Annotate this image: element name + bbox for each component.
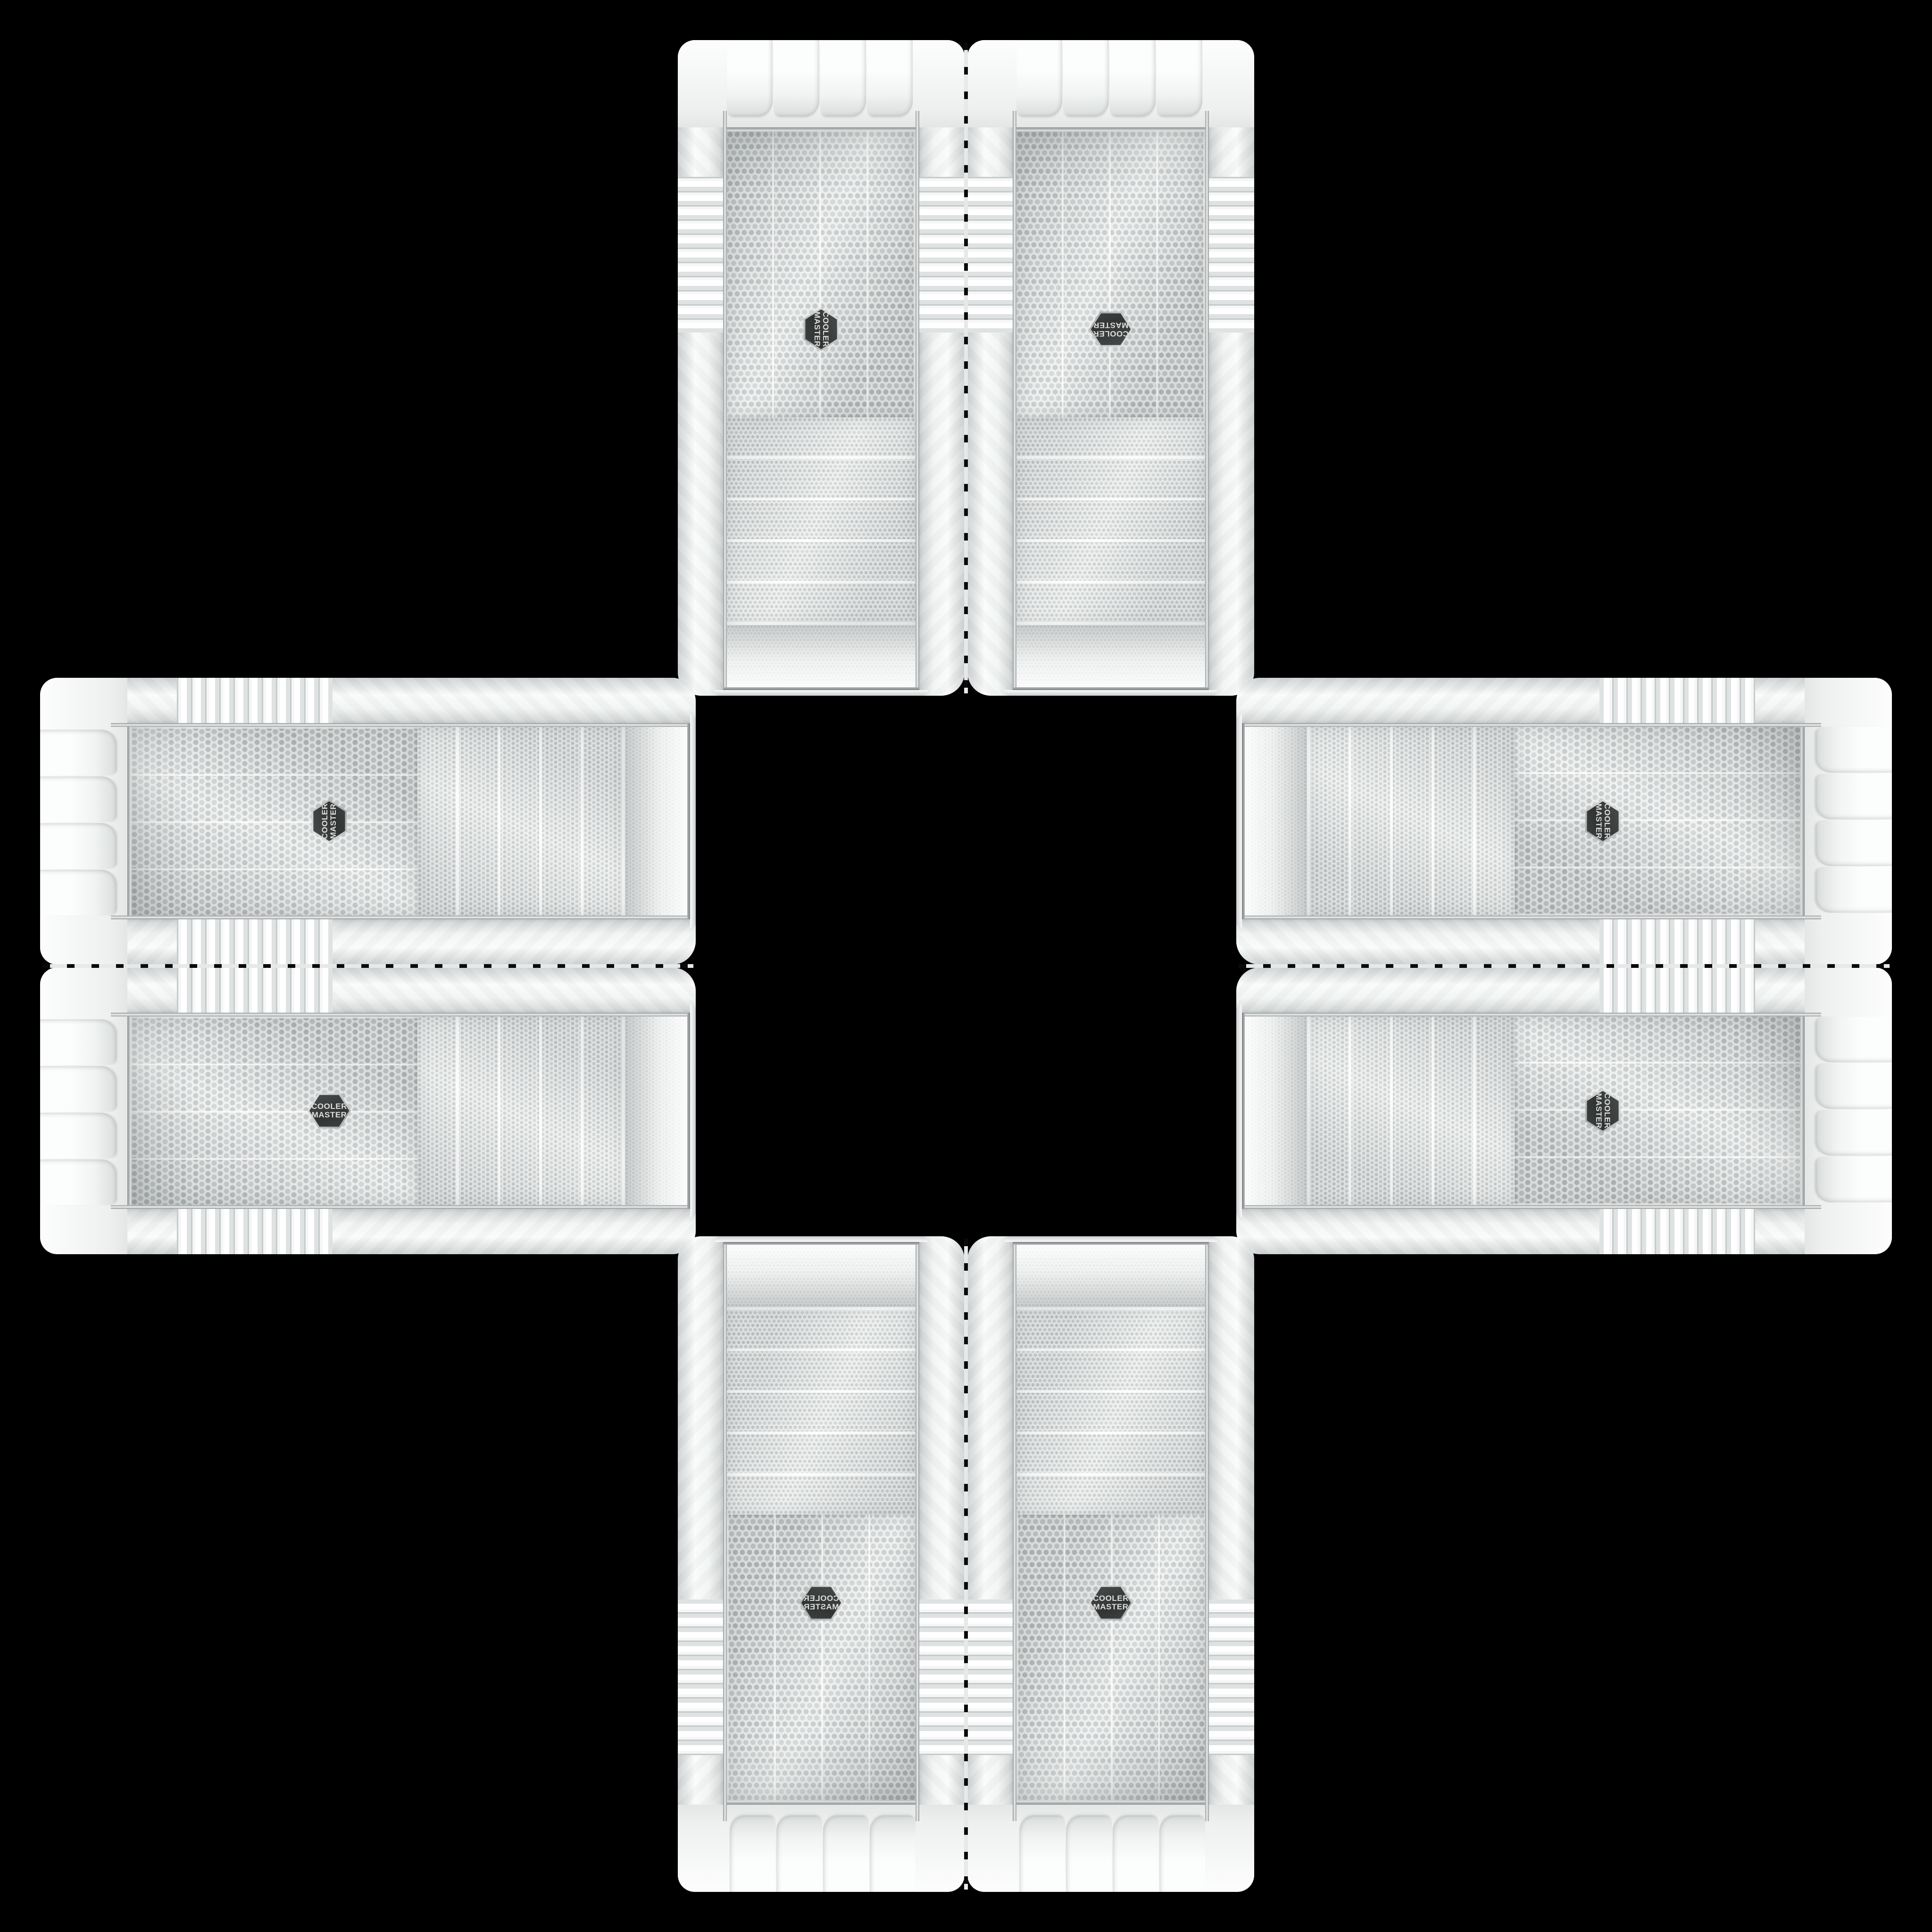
pillar-sheen (919, 1236, 965, 1892)
coarse-mesh-panel: COOLER MASTER (727, 131, 916, 417)
pillar-sheen (40, 1209, 696, 1254)
badge-text-line1: COOLER (821, 311, 830, 347)
grip-ribs (919, 177, 965, 333)
cap-segment (1816, 1016, 1892, 1062)
badge-text-line1: COOLER (803, 1594, 839, 1603)
case-tile-left-lower: COOLER MASTER (40, 967, 696, 1254)
bottom-lip (1236, 715, 1242, 928)
cap-segment (1019, 1816, 1065, 1892)
drive-bay-mesh (727, 417, 916, 625)
grip-ribs (1209, 1599, 1254, 1755)
grip-ribs (919, 1599, 965, 1755)
end-cap (1805, 967, 1892, 1254)
badge-face: COOLER MASTER (1091, 1586, 1131, 1619)
panel-gap-seam-top-pair-gap (964, 42, 968, 693)
bottom-wrap-mesh (625, 1016, 687, 1205)
case-tile-right-lower: COOLER MASTER (1236, 967, 1892, 1254)
end-cap (40, 967, 127, 1254)
badge-text-line2: MASTER (312, 1111, 347, 1119)
badge-text-line1: COOLER (321, 803, 329, 839)
side-pillar-left (40, 919, 696, 965)
chrome-trim-right (111, 1013, 688, 1016)
chrome-trim-left (111, 916, 688, 919)
cap-segment (774, 40, 819, 116)
pillar-sheen (1236, 1209, 1892, 1254)
side-pillar-left (678, 40, 723, 696)
side-pillar-left (1236, 967, 1892, 1013)
cooler-master-badge: COOLER MASTER (307, 1092, 351, 1129)
drive-bay-mesh (417, 727, 625, 916)
cap-segment (1110, 40, 1156, 116)
grip-ribs (177, 678, 333, 723)
chrome-trim-left (111, 1205, 688, 1209)
cap-segment (40, 1159, 116, 1205)
chrome-trim-left (916, 1244, 919, 1821)
cooler-master-badge: COOLER MASTER (1584, 799, 1621, 843)
grip-ribs (1209, 177, 1254, 333)
cap-segment (1063, 40, 1109, 116)
bottom-wrap-mesh (625, 727, 687, 916)
bottom-lip (690, 1004, 696, 1217)
chrome-trim-right (1244, 1205, 1821, 1209)
drive-bay-mesh (1307, 1016, 1515, 1205)
cooler-master-badge: COOLER MASTER (1089, 311, 1133, 348)
cap-segment (40, 1019, 116, 1065)
cooler-master-badge: COOLER MASTER (1584, 1089, 1621, 1133)
end-cap (678, 1805, 965, 1892)
cap-segment (40, 1066, 116, 1112)
case-tile-bottom-right: COOLER MASTER (967, 1236, 1254, 1892)
drive-bay-mesh (727, 1307, 916, 1515)
grip-ribs (967, 1599, 1013, 1755)
cap-segment (1066, 1816, 1112, 1892)
cooler-master-badge: COOLER MASTER (1089, 1584, 1133, 1621)
bottom-lip (715, 690, 928, 696)
grip-ribs (177, 919, 333, 965)
cap-chrome-trim (725, 1801, 917, 1805)
pillar-sheen (678, 1236, 723, 1892)
collage-canvas: COOLER MASTER (0, 0, 1932, 1932)
case-tile-left-upper: COOLER MASTER (40, 678, 696, 965)
coarse-mesh-panel: COOLER MASTER (1016, 131, 1205, 417)
grip-ribs (678, 1599, 723, 1755)
pillar-sheen (1236, 678, 1892, 723)
bottom-lip (715, 1236, 928, 1242)
badge-text-line2: MASTER (813, 312, 821, 347)
side-pillar-right (1236, 1209, 1892, 1254)
cap-segment (870, 1816, 916, 1892)
side-pillar-right (40, 678, 696, 723)
cap-segment (40, 730, 116, 775)
cap-segment (776, 1816, 822, 1892)
chrome-trim-left (1013, 111, 1016, 688)
side-pillar-left (919, 1236, 965, 1892)
coarse-mesh-panel: COOLER MASTER (1016, 1515, 1205, 1801)
side-pillar-right (678, 1236, 723, 1892)
badge-face: COOLER MASTER (309, 1094, 350, 1127)
bottom-lip (1004, 1236, 1217, 1242)
drive-bay-mesh (1016, 1307, 1205, 1515)
badge-face: COOLER MASTER (313, 801, 346, 841)
pillar-sheen (40, 919, 696, 965)
grip-ribs (177, 967, 333, 1013)
cap-segment (1816, 820, 1892, 866)
cap-chrome-trim (725, 127, 917, 131)
case-tile-right-upper: COOLER MASTER (1236, 678, 1892, 965)
cap-segment (40, 823, 116, 869)
side-pillar-left (40, 1209, 696, 1254)
pillar-sheen (1236, 967, 1892, 1013)
pillar-sheen (967, 40, 1013, 696)
cap-segment (1816, 727, 1892, 773)
bottom-wrap-mesh (1245, 727, 1307, 916)
badge-text-line2: MASTER (1594, 1093, 1603, 1129)
cap-chrome-trim (1801, 1015, 1805, 1207)
case-tile-bottom-left: COOLER MASTER (678, 1236, 965, 1892)
wrap-chrome-trim (1242, 1013, 1245, 1209)
badge-text-line2: MASTER (1594, 804, 1603, 839)
pillar-sheen (1209, 1236, 1254, 1892)
cap-segment (1113, 1816, 1158, 1892)
grip-ribs (1599, 967, 1755, 1013)
cap-chrome-trim (1015, 127, 1207, 131)
cap-segment (1816, 774, 1892, 819)
drive-bay-mesh (1016, 417, 1205, 625)
cap-segment (1816, 1063, 1892, 1109)
cap-segment (820, 40, 866, 116)
grip-ribs (177, 1209, 333, 1254)
cap-segment (40, 1113, 116, 1158)
badge-face: COOLER MASTER (805, 309, 838, 350)
bottom-lip (690, 715, 696, 928)
pillar-sheen (967, 1236, 1013, 1892)
bottom-lip (1236, 1004, 1242, 1217)
cap-segment (40, 776, 116, 822)
cap-segment (867, 40, 913, 116)
bottom-wrap-mesh (727, 1245, 916, 1307)
coarse-mesh-panel: COOLER MASTER (1515, 727, 1801, 916)
chrome-trim-right (1244, 916, 1821, 919)
side-pillar-left (967, 40, 1013, 696)
cap-chrome-trim (127, 1015, 131, 1207)
side-pillar-left (1209, 1236, 1254, 1892)
end-cap (678, 40, 965, 127)
drive-bay-mesh (417, 1016, 625, 1205)
pillar-sheen (40, 967, 696, 1013)
pillar-sheen (678, 40, 723, 696)
chrome-trim-left (1244, 1013, 1821, 1016)
bottom-wrap-mesh (1016, 1245, 1205, 1307)
cap-segment (823, 1816, 869, 1892)
grip-ribs (678, 177, 723, 333)
badge-text-line1: COOLER (311, 1102, 347, 1111)
cooler-master-badge: COOLER MASTER (803, 307, 840, 351)
grip-ribs (967, 177, 1013, 333)
cap-segment (40, 870, 116, 916)
end-cap (40, 678, 127, 965)
coarse-mesh-panel: COOLER MASTER (1515, 1016, 1801, 1205)
coarse-mesh-panel: COOLER MASTER (131, 727, 417, 916)
chrome-trim-left (723, 111, 727, 688)
chrome-trim-right (1205, 111, 1209, 688)
bottom-lip (1004, 690, 1217, 696)
wrap-chrome-trim (1242, 723, 1245, 919)
end-cap (1805, 678, 1892, 965)
badge-face: COOLER MASTER (1091, 313, 1131, 346)
chrome-trim-right (723, 1244, 727, 1821)
coarse-mesh-panel: COOLER MASTER (727, 1515, 916, 1801)
case-tile-top-left: COOLER MASTER (678, 40, 965, 696)
badge-text-line1: COOLER (1093, 1594, 1129, 1603)
cap-segment (1816, 1110, 1892, 1156)
case-tile-top-right: COOLER MASTER (967, 40, 1254, 696)
grip-ribs (1599, 678, 1755, 723)
cap-chrome-trim (1801, 725, 1805, 917)
pillar-sheen (40, 678, 696, 723)
bottom-wrap-mesh (727, 625, 916, 687)
badge-text-line2: MASTER (804, 1603, 839, 1611)
end-cap (967, 1805, 1254, 1892)
cap-segment (1159, 1816, 1205, 1892)
side-pillar-right (1236, 919, 1892, 965)
coarse-mesh-panel: COOLER MASTER (131, 1016, 417, 1205)
badge-face: COOLER MASTER (1586, 801, 1619, 841)
badge-face: COOLER MASTER (801, 1586, 841, 1619)
cap-segment (1016, 40, 1062, 116)
cap-segment (1157, 40, 1202, 116)
badge-text-line1: COOLER (1093, 329, 1129, 338)
cooler-master-badge: COOLER MASTER (799, 1584, 843, 1621)
wrap-chrome-trim (723, 1242, 919, 1245)
bottom-wrap-mesh (1245, 1016, 1307, 1205)
drive-bay-mesh (1307, 727, 1515, 916)
cap-segment (1816, 867, 1892, 913)
badge-text-line2: MASTER (1093, 1603, 1129, 1611)
side-pillar-right (919, 40, 965, 696)
side-pillar-right (40, 967, 696, 1013)
chrome-trim-right (1013, 1244, 1016, 1821)
bottom-wrap-mesh (1016, 625, 1205, 687)
end-cap (967, 40, 1254, 127)
badge-face: COOLER MASTER (1586, 1091, 1619, 1131)
chrome-trim-right (916, 111, 919, 688)
side-pillar-right (967, 1236, 1013, 1892)
chrome-trim-left (1244, 723, 1821, 727)
badge-text-line2: MASTER (1093, 321, 1129, 329)
cap-segment (1816, 1157, 1892, 1202)
badge-text-line2: MASTER (329, 804, 338, 839)
badge-text-line1: COOLER (1603, 803, 1611, 839)
cap-segment (727, 40, 773, 116)
panel-gap-seam-left-pair-gap (42, 964, 693, 968)
badge-text-line1: COOLER (1603, 1093, 1611, 1129)
cooler-master-badge: COOLER MASTER (311, 799, 348, 843)
cap-chrome-trim (1015, 1801, 1207, 1805)
panel-gap-seam-bottom-pair-gap (964, 1239, 968, 1890)
pillar-sheen (919, 40, 965, 696)
grip-ribs (1599, 1209, 1755, 1254)
cap-segment (730, 1816, 775, 1892)
pillar-sheen (1236, 919, 1892, 965)
cap-chrome-trim (127, 725, 131, 917)
side-pillar-right (1209, 40, 1254, 696)
side-pillar-left (1236, 678, 1892, 723)
wrap-chrome-trim (1013, 1242, 1209, 1245)
chrome-trim-left (1205, 1244, 1209, 1821)
pillar-sheen (1209, 40, 1254, 696)
panel-gap-seam-right-pair-gap (1239, 964, 1890, 968)
chrome-trim-right (111, 723, 688, 727)
grip-ribs (1599, 919, 1755, 965)
